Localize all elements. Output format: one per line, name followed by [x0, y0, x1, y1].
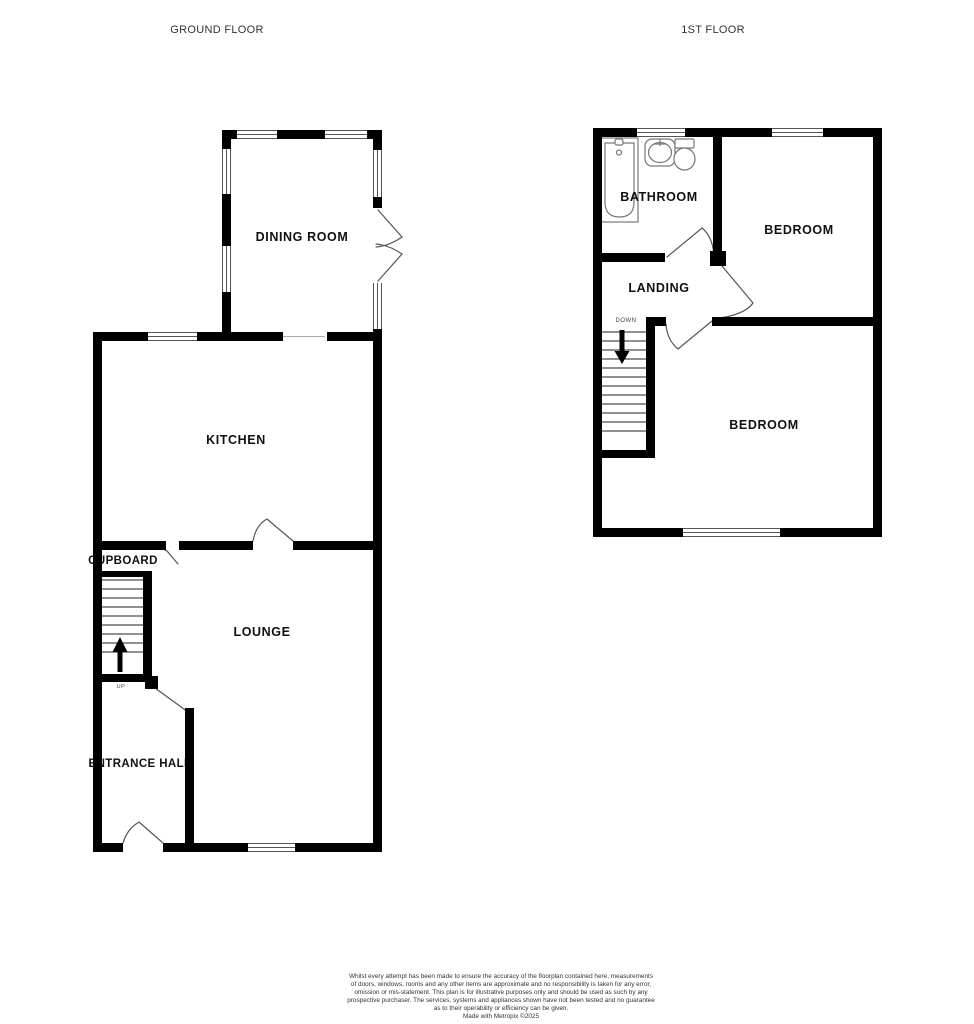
bathroom-door-swing	[667, 228, 714, 257]
wall-segment	[295, 843, 382, 852]
bathroom-fixtures	[601, 138, 695, 222]
window	[148, 333, 197, 341]
wall-segment	[93, 332, 102, 852]
kitchen-door-swing	[253, 519, 293, 541]
wall-segment	[593, 253, 665, 262]
kitchen-label: KITCHEN	[206, 433, 266, 447]
wall-segment	[873, 128, 882, 537]
disclaimer-line: Whilst every attempt has been made to en…	[301, 973, 701, 981]
wall-segment	[593, 128, 602, 537]
stair-treads	[102, 580, 143, 652]
front-door-swing	[123, 822, 163, 843]
bathroom-label: BATHROOM	[620, 190, 697, 204]
wall-segment	[712, 317, 882, 326]
wall-segment	[93, 541, 166, 550]
wall-segment	[93, 843, 123, 852]
wall-segment	[327, 332, 382, 341]
hall-door-swing	[155, 688, 188, 712]
disclaimer-line: Made with Metropix ©2025	[301, 1013, 701, 1021]
window	[374, 283, 382, 329]
ground-floor-labels: DINING ROOM KITCHEN LOUNGE CUPBOARD ENTR…	[88, 230, 348, 770]
bedroom-rear-label: BEDROOM	[729, 418, 798, 432]
landing-label: LANDING	[628, 281, 689, 295]
bedroom-door-swing	[714, 266, 753, 319]
wall-segment	[163, 843, 248, 852]
bedroom-door-swing	[666, 321, 712, 349]
wall-segment	[593, 528, 683, 537]
lounge-label: LOUNGE	[233, 625, 290, 639]
bathtub	[601, 138, 638, 222]
wall-segment	[185, 708, 194, 852]
wall-segment	[713, 137, 722, 253]
french-door-swing	[376, 210, 402, 247]
wall-segment	[373, 341, 382, 852]
wall-segment	[293, 541, 382, 550]
disclaimer-line: of doors, windows, rooms and any other i…	[301, 981, 701, 989]
up-label: UP	[117, 684, 126, 690]
wall-segment	[593, 450, 655, 458]
wall-segment	[143, 571, 152, 682]
window	[374, 150, 382, 197]
first-floor-plan: BATHROOM BEDROOM LANDING BEDROOM DOWN	[593, 128, 882, 537]
up-arrow	[113, 637, 128, 672]
disclaimer-line: prospective purchaser. The services, sys…	[301, 997, 701, 1005]
bathtub-drain	[617, 150, 622, 155]
wall-segment	[373, 197, 382, 208]
window	[325, 131, 367, 139]
wall-segment	[277, 130, 325, 139]
sink	[645, 139, 675, 166]
wall-segment	[179, 541, 253, 550]
window	[237, 131, 277, 139]
window	[223, 246, 231, 292]
down-label: DOWN	[616, 318, 637, 324]
wall-segment	[646, 317, 655, 458]
window	[683, 529, 780, 537]
wall-segment	[222, 194, 231, 246]
french-door-swing	[376, 244, 402, 281]
window	[223, 149, 231, 194]
bathtub-tap	[615, 139, 623, 145]
bedroom-front-label: BEDROOM	[764, 223, 833, 237]
ground-floor-doors	[123, 210, 402, 843]
first-floor-stairs	[602, 330, 646, 431]
disclaimer-line: as to their operability or efficiency ca…	[301, 1005, 701, 1013]
disclaimer-line: omission or mis-statement. This plan is …	[301, 989, 701, 997]
ground-floor-stairs	[102, 580, 143, 672]
wall-segment	[93, 674, 152, 682]
dining-room-label: DINING ROOM	[256, 230, 349, 244]
toilet-cistern	[675, 139, 694, 148]
wall-segment	[710, 251, 726, 266]
toilet	[674, 139, 695, 170]
floorplan-drawing: DINING ROOM KITCHEN LOUNGE CUPBOARD ENTR…	[0, 0, 974, 1024]
window	[772, 129, 823, 137]
entrance-hall-label: ENTRANCE HALL	[89, 758, 192, 770]
disclaimer: Whilst every attempt has been made to en…	[301, 973, 701, 1021]
toilet-bowl	[674, 148, 695, 170]
wall-segment	[197, 332, 283, 341]
window	[637, 129, 685, 137]
window	[248, 844, 295, 852]
wall-segment	[685, 128, 772, 137]
wall-segment	[780, 528, 882, 537]
wall-segment	[222, 130, 231, 149]
wall-segment	[373, 130, 382, 150]
floorplan-page: GROUND FLOOR 1ST FLOOR	[0, 0, 974, 1024]
ground-floor-plan: DINING ROOM KITCHEN LOUNGE CUPBOARD ENTR…	[88, 130, 402, 852]
